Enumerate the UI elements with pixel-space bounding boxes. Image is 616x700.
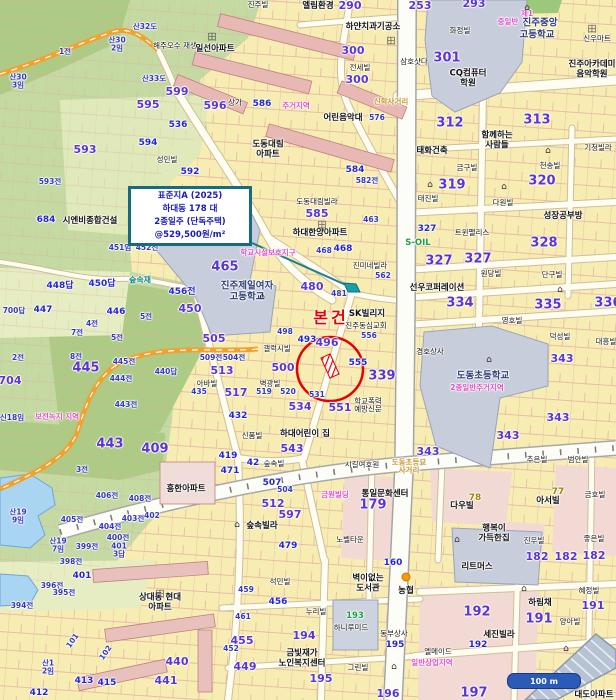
map-label: 산1 2임 bbox=[42, 660, 54, 677]
map-label: 아바빌 bbox=[197, 380, 218, 388]
map-label: 400전 bbox=[107, 534, 130, 542]
map-label: 448답 bbox=[46, 281, 73, 291]
map-label: 신18임 bbox=[0, 414, 24, 422]
map-label: 진주제일여자 고등학교 bbox=[221, 281, 273, 302]
map-label: 대도아파트 bbox=[574, 691, 613, 700]
map-label: 행복이 가득한집 bbox=[478, 524, 509, 543]
map-label: 455 bbox=[231, 635, 254, 647]
map-label: 하얀치과기공소 bbox=[346, 23, 401, 33]
map-label: 456전 bbox=[168, 287, 195, 297]
map-label: 456 bbox=[269, 597, 288, 607]
map-label: 천송빌 bbox=[540, 162, 561, 170]
map-label: 336 bbox=[594, 297, 616, 312]
building-icon: ⌂ bbox=[557, 285, 563, 295]
map-label: 대흥빌 bbox=[596, 338, 616, 346]
map-label: 555 bbox=[349, 358, 368, 368]
map-label: 누리빌 bbox=[306, 608, 327, 616]
building-icon: ⌂ bbox=[427, 180, 433, 190]
building-icon: ⌂ bbox=[545, 146, 551, 156]
map-label: 327 bbox=[418, 224, 437, 234]
map-label: 진주아카데미 음악학원 bbox=[569, 60, 616, 79]
map-label: 586 bbox=[253, 99, 272, 109]
building-icon: ⌂ bbox=[521, 584, 527, 594]
map-label: 단구빌 bbox=[542, 271, 563, 279]
map-label: 하니루미드 bbox=[334, 624, 369, 632]
map-label: 42 bbox=[247, 458, 260, 468]
map-label: 194 bbox=[293, 630, 316, 642]
map-label: 엘림환경 bbox=[302, 2, 333, 12]
map-label: 182 bbox=[526, 551, 549, 563]
map-label: 253 bbox=[409, 0, 432, 12]
map-label: 동부상사 bbox=[380, 630, 408, 638]
map-label: S-OIL bbox=[405, 239, 430, 249]
map-label: 그린빌 bbox=[348, 664, 369, 672]
map-label: 562 bbox=[375, 272, 391, 280]
map-label: 본건 bbox=[313, 309, 348, 327]
map-label: 192 bbox=[469, 640, 488, 650]
map-label: 태진빌 bbox=[418, 195, 439, 203]
map-label: 시길여호원 bbox=[345, 461, 380, 469]
map-label: 534 bbox=[289, 401, 312, 413]
map-label: 471 bbox=[221, 466, 240, 476]
cadastral-map[interactable]: 산30 3임산30 2임1전산32도산33도해주오수 재생59559959653… bbox=[0, 0, 616, 700]
scale-bar: 100 m bbox=[507, 673, 581, 689]
map-label: 1전 bbox=[59, 48, 71, 56]
map-label: 415 bbox=[98, 678, 117, 688]
map-label: 441 bbox=[155, 675, 178, 687]
map-label: 어린음악대 bbox=[323, 114, 362, 124]
map-label: 399전 bbox=[76, 543, 99, 551]
map-label: 509전 bbox=[200, 354, 223, 362]
building-icon: ⌂ bbox=[486, 355, 492, 365]
map-label: 시엔비종합건설 bbox=[63, 217, 118, 227]
map-label: 408전 bbox=[129, 495, 152, 503]
map-label: 335 bbox=[534, 299, 561, 314]
map-label: 519 bbox=[256, 388, 272, 396]
map-label: 갤럭시빌 bbox=[263, 345, 291, 353]
map-label: 444전 bbox=[110, 375, 133, 383]
map-label: 328 bbox=[530, 237, 557, 252]
callout-line-4: @529,500원/m² bbox=[155, 229, 226, 242]
map-label: 401 bbox=[73, 571, 92, 581]
map-labels-layer: 산30 3임산30 2임1전산32도산33도해주오수 재생59559959653… bbox=[0, 0, 616, 700]
map-label: 504 bbox=[277, 486, 293, 494]
map-label: 301 bbox=[433, 52, 460, 67]
map-label: 582전 bbox=[356, 177, 379, 185]
map-label: 신우마트 bbox=[583, 35, 611, 43]
map-label: 498 bbox=[277, 328, 293, 336]
map-label: 182 bbox=[555, 551, 578, 563]
map-label: 327 bbox=[464, 253, 491, 268]
standard-lot-callout: 표준지A (2025) 하대동 178 대 2종일주 (단독주택) @529,5… bbox=[128, 186, 252, 246]
map-label: 도동초등학교 bbox=[457, 372, 509, 383]
map-label: 496 bbox=[316, 337, 339, 349]
map-label: 주거지역 bbox=[282, 102, 310, 110]
building-icon: ⌂ bbox=[524, 3, 530, 13]
map-label: 479 bbox=[279, 541, 298, 551]
map-label: 2종일반주거지역 bbox=[450, 384, 504, 392]
callout-line-1: 표준지A (2025) bbox=[158, 190, 222, 203]
map-label: 트윈팰리스 bbox=[455, 229, 490, 237]
map-label: 504전 bbox=[223, 354, 246, 362]
map-label: 원당빌 bbox=[481, 270, 502, 278]
map-label: 413 bbox=[75, 676, 94, 686]
map-label: 통일문화센터 bbox=[362, 490, 409, 500]
map-label: 505 bbox=[203, 333, 226, 345]
map-label: 409 bbox=[141, 443, 168, 458]
map-label: 산32도 bbox=[133, 23, 157, 31]
building-icon: ⌂ bbox=[391, 662, 397, 672]
callout-line-2: 하대동 178 대 bbox=[163, 203, 218, 216]
map-label: CQ컴퓨터 학원 bbox=[450, 69, 487, 88]
map-label: 191 bbox=[525, 613, 552, 628]
map-label: 태화건축 bbox=[416, 147, 447, 157]
map-label: 7전 bbox=[71, 329, 83, 337]
building-icon: ⌂ bbox=[454, 535, 460, 545]
map-label: 517 bbox=[225, 387, 248, 399]
map-label: 450답 bbox=[88, 279, 115, 289]
callout-line-3: 2종일주 (단독주택) bbox=[154, 216, 225, 229]
map-label: 금빛재가 노인복지센터 bbox=[279, 649, 326, 668]
map-label: 700답 bbox=[3, 307, 26, 315]
map-label: 경호상사 bbox=[416, 348, 444, 356]
map-label: 덕성빌 bbox=[550, 333, 571, 341]
map-label: 벽광빌 bbox=[260, 380, 281, 388]
map-label: 도동초등교 사거리 bbox=[392, 459, 427, 476]
map-label: 고등학교 bbox=[520, 31, 555, 42]
building-icon: 田 bbox=[155, 590, 164, 600]
map-label: 293 bbox=[463, 0, 486, 10]
map-label: 507 bbox=[263, 478, 282, 488]
map-label: 576 bbox=[369, 114, 385, 122]
map-label: 진주동심교회 bbox=[345, 322, 386, 330]
map-label: 445 bbox=[72, 362, 99, 377]
map-label: 481 bbox=[331, 290, 347, 298]
map-label: 흥한아파트 bbox=[166, 485, 205, 495]
map-label: 해주오수 재생 bbox=[153, 42, 197, 50]
map-label: 419 bbox=[219, 451, 238, 461]
map-label: 보전녹지 지역 bbox=[35, 413, 79, 421]
map-label: 593 bbox=[74, 144, 97, 156]
map-label: 192 bbox=[463, 606, 490, 621]
map-label: 334 bbox=[446, 297, 473, 312]
building-icon: 田 bbox=[386, 37, 395, 47]
map-label: 금호빌 bbox=[585, 491, 606, 499]
map-label: 401 3답 bbox=[111, 543, 127, 560]
map-label: 학교폭력 예방신문 bbox=[354, 398, 382, 415]
map-label: 597 bbox=[279, 509, 302, 521]
map-label: 하대어린이 집 bbox=[280, 430, 330, 440]
map-label: 551 bbox=[329, 402, 352, 414]
map-label: 진주중앙 bbox=[523, 19, 558, 30]
map-label: 585 bbox=[306, 208, 329, 220]
map-label: 양아빌 bbox=[560, 618, 581, 626]
map-label: SK빌리지 bbox=[349, 310, 385, 320]
map-label: 산30 3임 bbox=[9, 74, 26, 91]
map-label: 443 bbox=[96, 438, 123, 453]
map-label: 중일반 bbox=[498, 18, 519, 26]
map-label: 313 bbox=[523, 114, 550, 129]
building-icon: ⌂ bbox=[234, 520, 240, 530]
map-label: 5전 bbox=[111, 334, 123, 342]
map-label: 진미네빌라 bbox=[353, 262, 388, 270]
map-label: 343 bbox=[547, 412, 570, 424]
map-label: 도동대림 아파트 bbox=[252, 140, 283, 159]
map-label: 327 bbox=[425, 255, 452, 270]
map-label: 593전 bbox=[39, 178, 62, 186]
map-label: 394전 bbox=[11, 602, 34, 610]
map-label: 벽이없는 도서관 bbox=[352, 574, 383, 593]
map-label: 산19 9임 bbox=[9, 509, 26, 526]
map-label: 4전 bbox=[86, 320, 98, 328]
map-label: 196 bbox=[377, 688, 400, 700]
map-label: 459 bbox=[238, 586, 254, 594]
map-label: 412 bbox=[30, 688, 49, 698]
map-label: 312 bbox=[436, 117, 463, 132]
map-label: 432 bbox=[229, 411, 248, 421]
map-label: 상대동 현대 아파트 bbox=[139, 593, 181, 612]
map-label: 숲속재 bbox=[129, 277, 151, 286]
map-label: 리트머스 bbox=[461, 563, 492, 573]
map-label: 일반상업지역 bbox=[411, 659, 452, 667]
map-label: 제1 bbox=[521, 10, 533, 18]
map-label: 599 bbox=[166, 86, 189, 98]
map-label: 406전 bbox=[96, 492, 119, 500]
map-label: 일선아파트 bbox=[195, 45, 234, 55]
map-label: 77 bbox=[552, 487, 565, 497]
map-label: 339 bbox=[368, 370, 395, 385]
map-label: 300 bbox=[342, 45, 365, 57]
map-label: 2전 bbox=[12, 354, 24, 362]
map-label: 440답 bbox=[155, 368, 178, 376]
map-label: 300 bbox=[346, 74, 369, 86]
map-label: 102 bbox=[98, 644, 114, 662]
map-label: 290 bbox=[339, 0, 362, 12]
map-label: 78 bbox=[469, 493, 482, 503]
map-label: 노벨타운 bbox=[336, 536, 364, 544]
map-label: 596 bbox=[204, 100, 227, 112]
map-label: 435 bbox=[191, 388, 207, 396]
map-label: 443전 bbox=[115, 401, 138, 409]
map-label: 595 bbox=[137, 99, 160, 111]
map-label: 하대한양아파트 bbox=[293, 229, 348, 239]
map-label: 405전 bbox=[61, 516, 84, 524]
map-label: 진우빌 bbox=[524, 537, 545, 545]
map-label: 선우코퍼레이션 bbox=[410, 284, 465, 294]
map-label: 182 bbox=[583, 550, 606, 562]
map-label: 학교시설보호지구 bbox=[240, 249, 295, 257]
map-label: 160 bbox=[384, 558, 403, 568]
map-label: 398전 bbox=[60, 558, 83, 566]
map-label: 다우빌 bbox=[450, 502, 473, 512]
map-label: 468 bbox=[316, 247, 332, 255]
map-label: 704 bbox=[0, 375, 21, 387]
building-icon: 田 bbox=[587, 25, 596, 35]
map-label: 신품빌 bbox=[242, 432, 263, 440]
map-label: 446 bbox=[107, 307, 126, 317]
map-label: 320 bbox=[528, 175, 555, 190]
map-label: 512 bbox=[262, 498, 285, 510]
map-label: 543 bbox=[281, 443, 304, 455]
building-icon: ⌂ bbox=[259, 292, 265, 302]
map-label: 395전 bbox=[53, 589, 76, 597]
building-icon: ⌂ bbox=[501, 182, 507, 192]
map-label: 500 bbox=[272, 362, 295, 374]
map-label: 452 bbox=[223, 645, 239, 653]
map-label: 도동대림빌라 bbox=[296, 198, 337, 206]
map-label: 592 bbox=[181, 167, 200, 177]
map-label: 숲속빌 bbox=[264, 460, 285, 468]
map-label: 480 bbox=[301, 281, 324, 293]
map-label: 영호빌 bbox=[502, 317, 523, 325]
map-label: 343 bbox=[417, 446, 440, 458]
map-label: 화정빌 bbox=[450, 27, 471, 35]
map-label: 449 bbox=[234, 661, 257, 673]
map-label: 산30 2임 bbox=[108, 37, 125, 54]
poi-dot-icon bbox=[402, 573, 411, 582]
map-label: 195 bbox=[310, 673, 333, 685]
map-label: 금원빌딩 bbox=[321, 491, 349, 499]
map-label: 536 bbox=[169, 120, 188, 130]
map-label: 기청빌라 bbox=[584, 144, 612, 152]
map-label: 513 bbox=[211, 365, 234, 377]
map-label: 447 bbox=[34, 305, 53, 315]
map-label: 440 bbox=[166, 656, 189, 668]
map-label: 195 bbox=[386, 640, 405, 650]
map-label: 산33도 bbox=[142, 75, 166, 83]
map-label: 숲속빌라 bbox=[246, 522, 277, 532]
map-label: 520 bbox=[280, 388, 296, 396]
map-label: 556 bbox=[361, 332, 377, 340]
map-label: 319 bbox=[438, 179, 465, 194]
map-label: 하림채 bbox=[528, 599, 551, 609]
map-label: 다원빌 bbox=[493, 199, 514, 207]
map-label: 101 bbox=[65, 632, 81, 650]
map-label: 403전 bbox=[122, 515, 145, 523]
map-label: 농협 bbox=[398, 587, 414, 597]
map-label: 193 bbox=[346, 612, 364, 622]
map-label: 삼호샷다 bbox=[400, 58, 428, 66]
map-label: 아서빌 bbox=[536, 497, 559, 507]
map-label: 404전 bbox=[99, 523, 122, 531]
map-label: 450 bbox=[179, 303, 202, 315]
map-label: 584 bbox=[346, 165, 365, 175]
map-label: 396전 bbox=[41, 582, 64, 590]
map-label: 445전 bbox=[113, 358, 136, 366]
map-label: 684 bbox=[37, 215, 56, 225]
map-label: 402 bbox=[144, 512, 160, 520]
map-label: 197 bbox=[460, 687, 487, 700]
map-label: 범안빌 bbox=[568, 456, 589, 464]
map-label: 세진빌라 bbox=[483, 631, 514, 641]
map-label: 전세빌 bbox=[350, 64, 371, 72]
map-label: 상가 bbox=[228, 99, 242, 107]
map-label: 461 bbox=[235, 613, 251, 621]
map-label: 성민빌 bbox=[157, 156, 178, 164]
map-label: 성장공부방 bbox=[543, 212, 582, 222]
map-label: 석민빌 bbox=[270, 578, 291, 586]
map-label: 좋은빌 bbox=[584, 535, 605, 543]
map-label: 신학사거리 bbox=[374, 98, 409, 106]
map-label: 진주빌 bbox=[248, 1, 269, 9]
map-label: 191 bbox=[582, 600, 605, 612]
map-label: 531 bbox=[309, 391, 325, 399]
map-label: 3전 bbox=[76, 466, 88, 474]
map-label: 함께하는 사람들 bbox=[481, 131, 512, 150]
map-label: 468 bbox=[334, 244, 353, 254]
map-label: 엘메이드 bbox=[424, 648, 452, 656]
map-label: 금구빌 bbox=[457, 164, 478, 172]
map-label: 5전 bbox=[140, 313, 152, 321]
building-icon: ⌂ bbox=[563, 644, 569, 654]
map-label: 343 bbox=[497, 430, 520, 442]
map-label: 594 bbox=[139, 138, 158, 148]
map-label: 혜정빌 bbox=[579, 587, 600, 595]
map-label: 추은빌 bbox=[527, 456, 548, 464]
map-label: 산19 7임 bbox=[49, 538, 66, 555]
building-icon: 田 bbox=[207, 33, 216, 43]
map-label: 343 bbox=[551, 353, 574, 365]
map-label: 179 bbox=[359, 499, 386, 514]
map-label: 493 bbox=[298, 335, 317, 345]
building-icon: 田 bbox=[317, 221, 326, 231]
map-label: 8전 bbox=[70, 353, 82, 361]
map-label: 465 bbox=[211, 261, 238, 276]
map-label: 463 bbox=[363, 216, 379, 224]
